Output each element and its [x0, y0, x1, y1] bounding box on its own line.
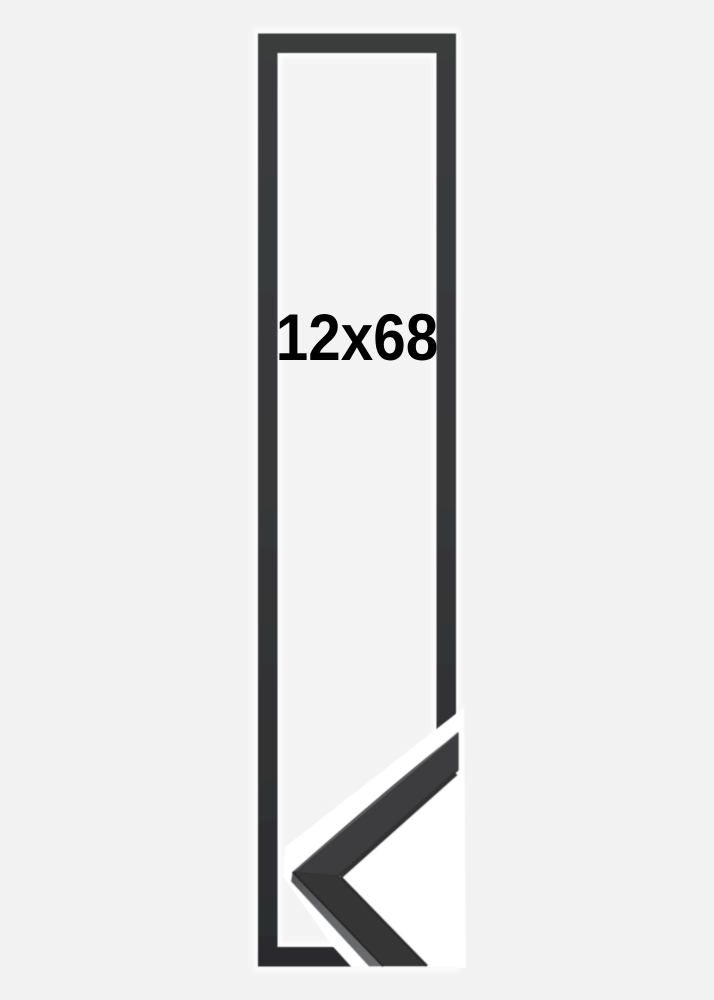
svg-text:12x68: 12x68 — [276, 302, 438, 375]
